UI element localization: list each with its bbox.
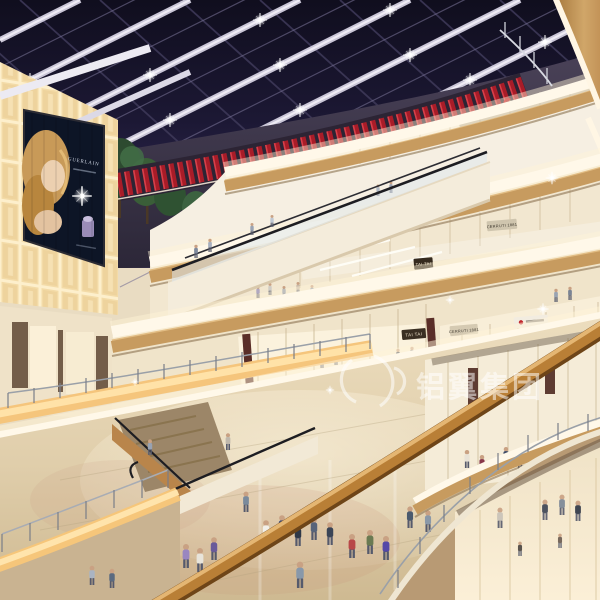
model-face (41, 160, 65, 192)
watermark-text: 铝翼集团 (416, 371, 544, 404)
mall-atrium-rendering: THEATRES CERRUTI 1881 TAI TAI (0, 0, 600, 600)
ad-screen: GUERLAIN (22, 110, 104, 266)
store-sign-taitai-lower: TAI TAI (401, 328, 426, 340)
rendering-canvas: THEATRES CERRUTI 1881 TAI TAI (0, 0, 600, 600)
